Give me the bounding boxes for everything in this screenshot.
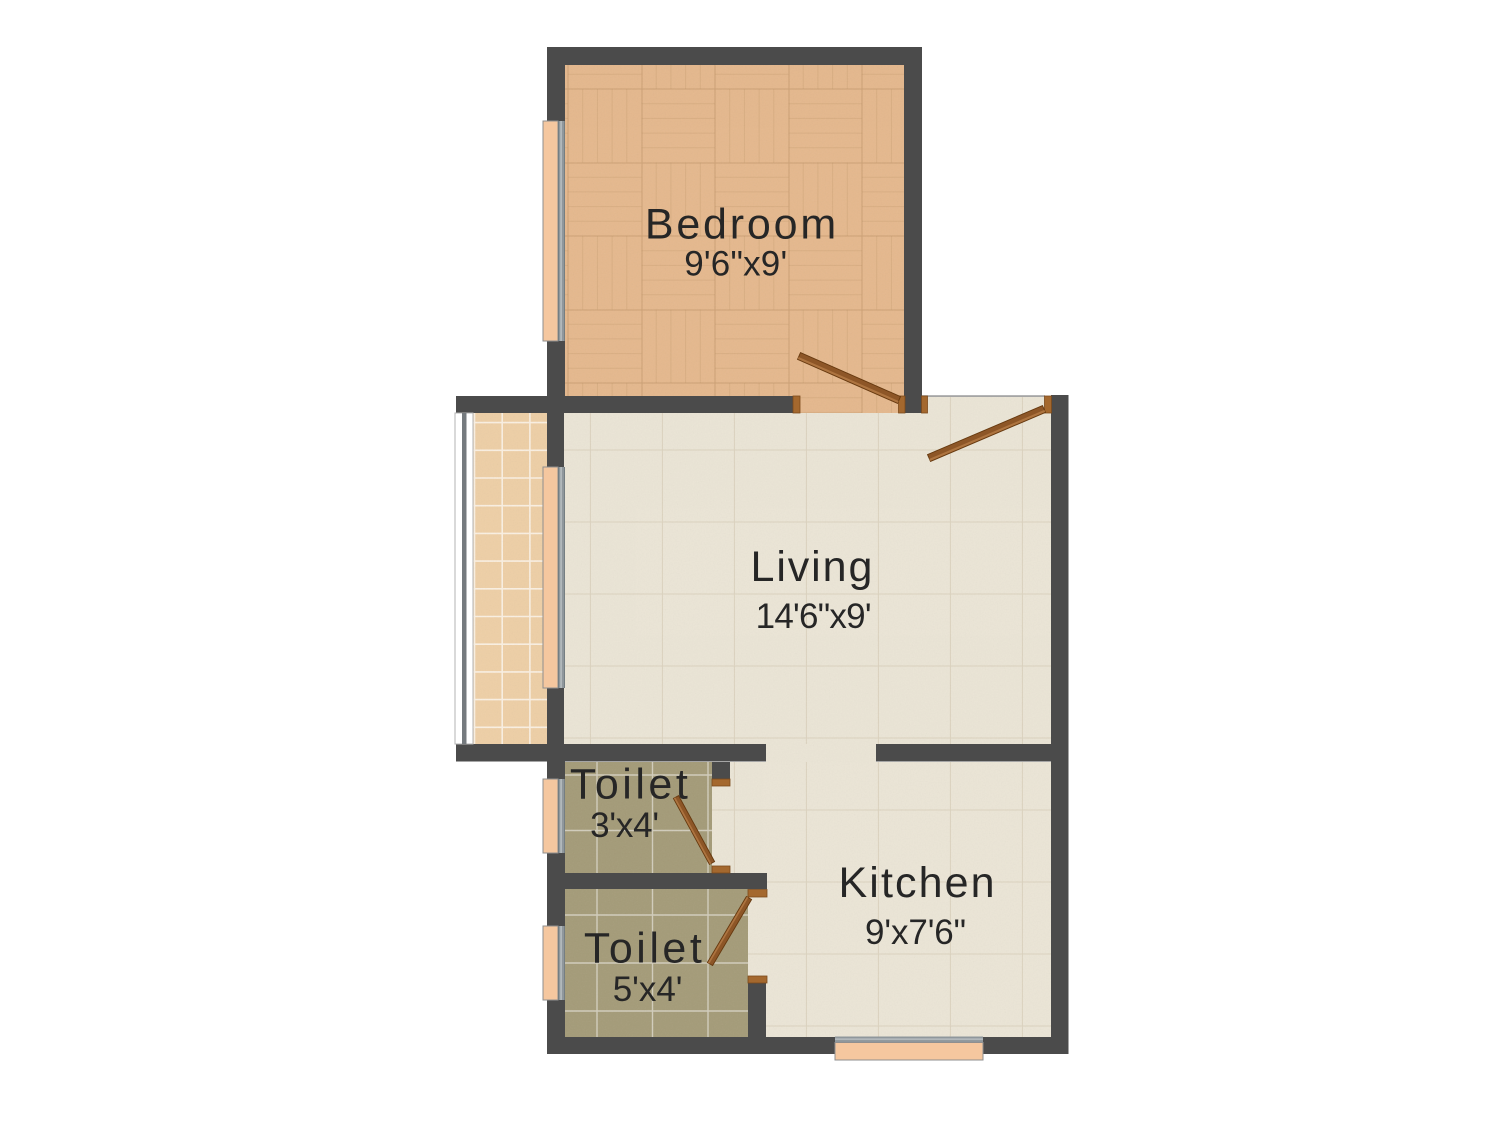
svg-text:Toilet: Toilet [570, 761, 691, 809]
svg-text:9'6"x9': 9'6"x9' [684, 245, 787, 284]
svg-text:3'x4': 3'x4' [590, 806, 659, 845]
svg-text:14'6"x9': 14'6"x9' [756, 597, 871, 636]
svg-text:5'x4': 5'x4' [613, 970, 683, 1009]
svg-text:Kitchen: Kitchen [839, 859, 997, 907]
svg-text:Living: Living [751, 543, 875, 591]
svg-text:Toilet: Toilet [584, 925, 705, 973]
svg-text:9'x7'6": 9'x7'6" [865, 913, 966, 952]
svg-text:Bedroom: Bedroom [645, 201, 839, 249]
